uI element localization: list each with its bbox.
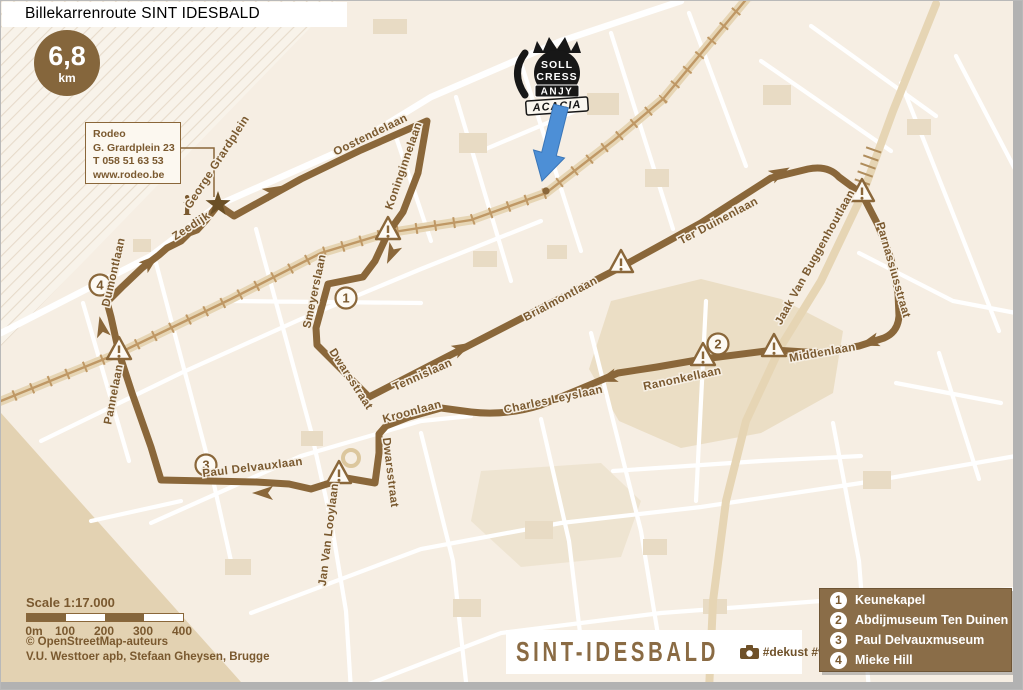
legend-label-2: Abdijmuseum Ten Duinen [855,613,1008,627]
legend-label-4: Mieke Hill [855,653,913,667]
poi-marker-2: 2 [708,334,729,355]
legend-num-4: 4 [830,652,847,669]
info-line-phone: T 058 51 63 53 [93,155,180,169]
credits: © OpenStreetMap-auteurs V.U. Westtoer ap… [26,635,269,665]
camera-icon [740,645,759,659]
poi-marker-1: 1 [336,288,357,309]
frame-shadow-bottom [1,682,1022,689]
brand-logo-text: SINT-IDESBALD [516,636,719,669]
legend-num-3: 3 [830,632,847,649]
tram-stop-dot [542,187,549,194]
info-line-name: Rodeo [93,128,180,142]
legend-label-1: Keunekapel [855,593,925,607]
legend-item-2: 2 Abdijmuseum Ten Duinen [830,612,1001,629]
distance-unit: km [58,72,75,84]
footer-brand-box: SINT-IDESBALD #dekust #visitkoksijde [506,630,802,674]
svg-text:ANJY: ANJY [541,87,574,98]
info-line-website: www.rodeo.be [93,169,180,183]
frame-shadow-right [1013,1,1022,689]
info-line-address: G. Grardplein 23 [93,142,180,156]
legend-item-1: 1 Keunekapel [830,592,1001,609]
credits-publisher: V.U. Westtoer apb, Stefaan Gheysen, Brug… [26,650,269,665]
page-title: Billekarrenroute SINT IDESBALD [25,5,260,23]
svg-text:SOLL: SOLL [541,59,573,71]
legend-box: 1 Keunekapel 2 Abdijmuseum Ten Duinen 3 … [819,588,1012,672]
legend-item-3: 3 Paul Delvauxmuseum [830,632,1001,649]
svg-text:CRESS: CRESS [536,71,577,83]
svg-text:1: 1 [342,291,349,306]
roundabout [343,450,359,466]
scale-label: Scale 1:17.000 [26,595,226,610]
legend-label-3: Paul Delvauxmuseum [855,633,984,647]
legend-item-4: 4 Mieke Hill [830,652,1001,669]
distance-value: 6,8 [48,43,86,70]
svg-text:2: 2 [714,337,721,352]
legend-num-2: 2 [830,612,847,629]
scale-block: Scale 1:17.000 0m 100 200 300 400 [26,595,226,638]
map-card: i 1 2 3 4 George Grardplein Oostendelaan… [0,0,1023,690]
credits-osm: © OpenStreetMap-auteurs [26,635,269,650]
scale-bar [26,613,184,622]
tourist-info-box: Rodeo G. Grardplein 23 T 058 51 63 53 ww… [85,122,181,184]
legend-num-1: 1 [830,592,847,609]
distance-badge: 6,8 km [34,30,100,96]
route-map: i 1 2 3 4 George Grardplein Oostendelaan… [1,1,1023,690]
